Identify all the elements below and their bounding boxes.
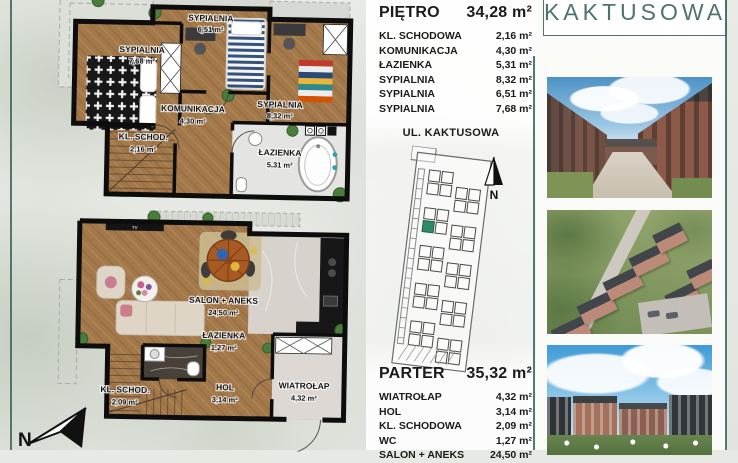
- house-block: [619, 403, 667, 437]
- house-block: [547, 397, 571, 437]
- room-label: SYPIALNIA: [188, 13, 234, 24]
- room-area: 24,50 m²: [208, 308, 239, 318]
- table-row: KL. SCHODOWA2,16 m²: [379, 29, 532, 44]
- grass: [672, 178, 712, 198]
- upper-floor-title: PIĘTRO: [379, 4, 440, 22]
- vestibule-wardrobe-icon: [276, 337, 332, 354]
- garden-flowers: [547, 435, 712, 455]
- room-area: 6,51 m²: [198, 25, 225, 35]
- table-row: WC1,27 m²: [379, 434, 532, 449]
- armchair-icon: [97, 266, 126, 298]
- table-row: SYPIALNIA8,32 m²: [379, 73, 532, 88]
- upper-floor-table: PIĘTRO 34,28 m² KL. SCHODOWA2,16 m² KOMU…: [379, 4, 532, 117]
- ground-floor-title: PARTER: [379, 365, 445, 383]
- room-area: 1,27 m²: [211, 343, 238, 352]
- table-row: HOL3,14 m²: [379, 405, 532, 420]
- table-row: SYPIALNIA7,68 m²: [379, 102, 532, 117]
- townhouse-row: [547, 389, 712, 437]
- photo-aerial-view: [547, 210, 712, 334]
- sink-icon: [249, 132, 262, 145]
- coffee-table-flowers-icon: [131, 276, 157, 302]
- svg-text:TV: TV: [132, 225, 138, 230]
- table-row: SALON + ANEKS24,50 m²: [379, 448, 532, 463]
- room-label: SYPIALNIA: [257, 99, 303, 110]
- room-label: HOL: [216, 382, 234, 392]
- table-row: WIATROŁAP4,32 m²: [379, 390, 532, 405]
- north-label: N: [490, 188, 499, 201]
- table-row: KL. SCHODOWA2,09 m²: [379, 419, 532, 434]
- room-area: 7,68 m²: [129, 56, 156, 66]
- frame-line-middle: [533, 56, 535, 450]
- bathtub-icon: [298, 137, 338, 192]
- table-row: SYPIALNIA6,51 m²: [379, 87, 532, 102]
- toilet-icon: [236, 178, 246, 192]
- room-label: KOMUNIKACJA: [161, 103, 225, 114]
- highlighted-unit: [422, 221, 434, 233]
- north-label: N: [18, 430, 32, 450]
- ground-floor-table: PARTER 35,32 m² WIATROŁAP4,32 m² HOL3,14…: [379, 365, 532, 463]
- room-area: 3,14 m²: [212, 395, 239, 404]
- room-area: 2,09 m²: [112, 397, 139, 406]
- room-area: 4,30 m²: [180, 116, 207, 126]
- room-label: SALON + ANEKS: [189, 295, 258, 306]
- room-label: ŁAZIENKA: [202, 330, 245, 341]
- main-north-arrow: N: [16, 400, 96, 450]
- room-area: 8,32 m²: [267, 111, 294, 121]
- grass: [547, 172, 593, 198]
- room-label: ŁAZIENKA: [258, 147, 301, 158]
- upper-floor-total-area: 34,28 m²: [466, 4, 532, 22]
- frame-line-left: [10, 0, 12, 450]
- washer-row-icon: [305, 126, 336, 136]
- bed-double-icon: [85, 55, 157, 130]
- brand-logo: KAKTUSOWA: [543, 0, 727, 36]
- room-label: KL. SCHOD.: [100, 384, 149, 395]
- bed-single-icon: [226, 18, 265, 89]
- upper-floor-plan: SYPIALNIA 7,68 m² SYPIALNIA 6,51 m² SYPI…: [54, 0, 365, 217]
- car: [647, 310, 660, 318]
- car: [666, 312, 679, 320]
- site-north-arrow: N: [481, 153, 507, 201]
- room-label: SYPIALNIA: [119, 44, 165, 55]
- room-area: 4,32 m²: [291, 393, 318, 402]
- room-label: WIATROŁAP: [279, 380, 330, 391]
- street-label: UL. KAKTUSOWA: [366, 127, 536, 139]
- house-block: [573, 396, 617, 437]
- ground-floor-plan: TV: [54, 207, 364, 452]
- house-block: [669, 395, 712, 437]
- room-label: KL. SCHOD.: [119, 131, 168, 142]
- chevron-rug-icon: [298, 60, 333, 103]
- room-area: 2,16 m²: [130, 144, 157, 154]
- photo-estate-view: [547, 345, 712, 455]
- table-row: KOMUNIKACJA4,30 m²: [379, 44, 532, 59]
- table-row: ŁAZIENKA5,31 m²: [379, 58, 532, 73]
- ground-floor-total-area: 35,32 m²: [466, 365, 532, 383]
- room-area: 5,31 m²: [267, 160, 294, 170]
- wardrobe-icon: [323, 24, 348, 54]
- frame-line-right: [725, 0, 727, 450]
- sofa-icon: [116, 300, 205, 336]
- photo-street-view: [547, 77, 712, 198]
